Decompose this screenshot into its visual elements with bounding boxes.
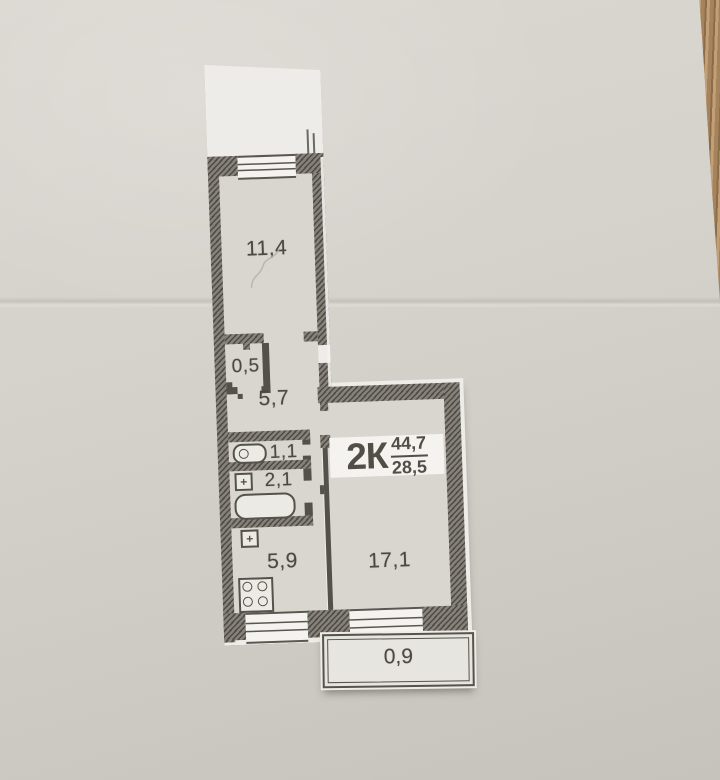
wall-partition (303, 456, 311, 460)
bathtub-icon (234, 492, 296, 520)
balcony-area-label: 0,9 (324, 644, 472, 670)
door-jamb (320, 485, 324, 494)
bathroom-area-label: 2,1 (256, 470, 301, 491)
window-symbol-room (237, 154, 296, 180)
apartment-type-code: 2К (346, 435, 389, 478)
wall-partition (303, 469, 311, 481)
apartment-label-sticker: 2К 44,7 28,5 (329, 434, 444, 478)
floorplan-cutout: 11,4 0,5 5,7 (204, 52, 479, 710)
wall-pier (226, 382, 232, 394)
burner-icon (242, 582, 252, 592)
toilet-icon (232, 443, 267, 464)
sink-icon: + (234, 473, 253, 492)
burner-icon (257, 581, 267, 591)
kitchen-area-label: 5,9 (251, 549, 314, 572)
toilet-tank-icon (239, 448, 249, 458)
floor-living (322, 399, 451, 610)
wood-table-edge (696, 0, 720, 300)
wall (223, 613, 246, 641)
wall (304, 331, 318, 341)
plan-paper-balcony: 0,9 (320, 630, 477, 690)
burner-icon (257, 596, 267, 606)
area-fraction: 44,7 28,5 (390, 433, 429, 478)
living-area-value: 28,5 (391, 456, 429, 477)
kitchen-sink-icon: + (240, 529, 259, 548)
photo-scene: 11,4 0,5 5,7 (0, 0, 720, 780)
window-symbol-kitchen (245, 611, 308, 644)
closet-area-label: 0,5 (224, 356, 267, 376)
living-room-area-label: 17,1 (357, 549, 422, 572)
burner-icon (243, 596, 253, 606)
wall (320, 403, 328, 411)
wall-partition (302, 440, 310, 445)
hallway-area-label: 5,7 (241, 387, 306, 410)
wall-partition (304, 502, 312, 515)
balcony-outline: 0,9 (322, 632, 475, 688)
wc-area-label: 1,1 (263, 442, 304, 462)
door-jamb (243, 344, 250, 350)
total-area-value: 44,7 (390, 433, 428, 457)
stove-icon (238, 577, 274, 613)
